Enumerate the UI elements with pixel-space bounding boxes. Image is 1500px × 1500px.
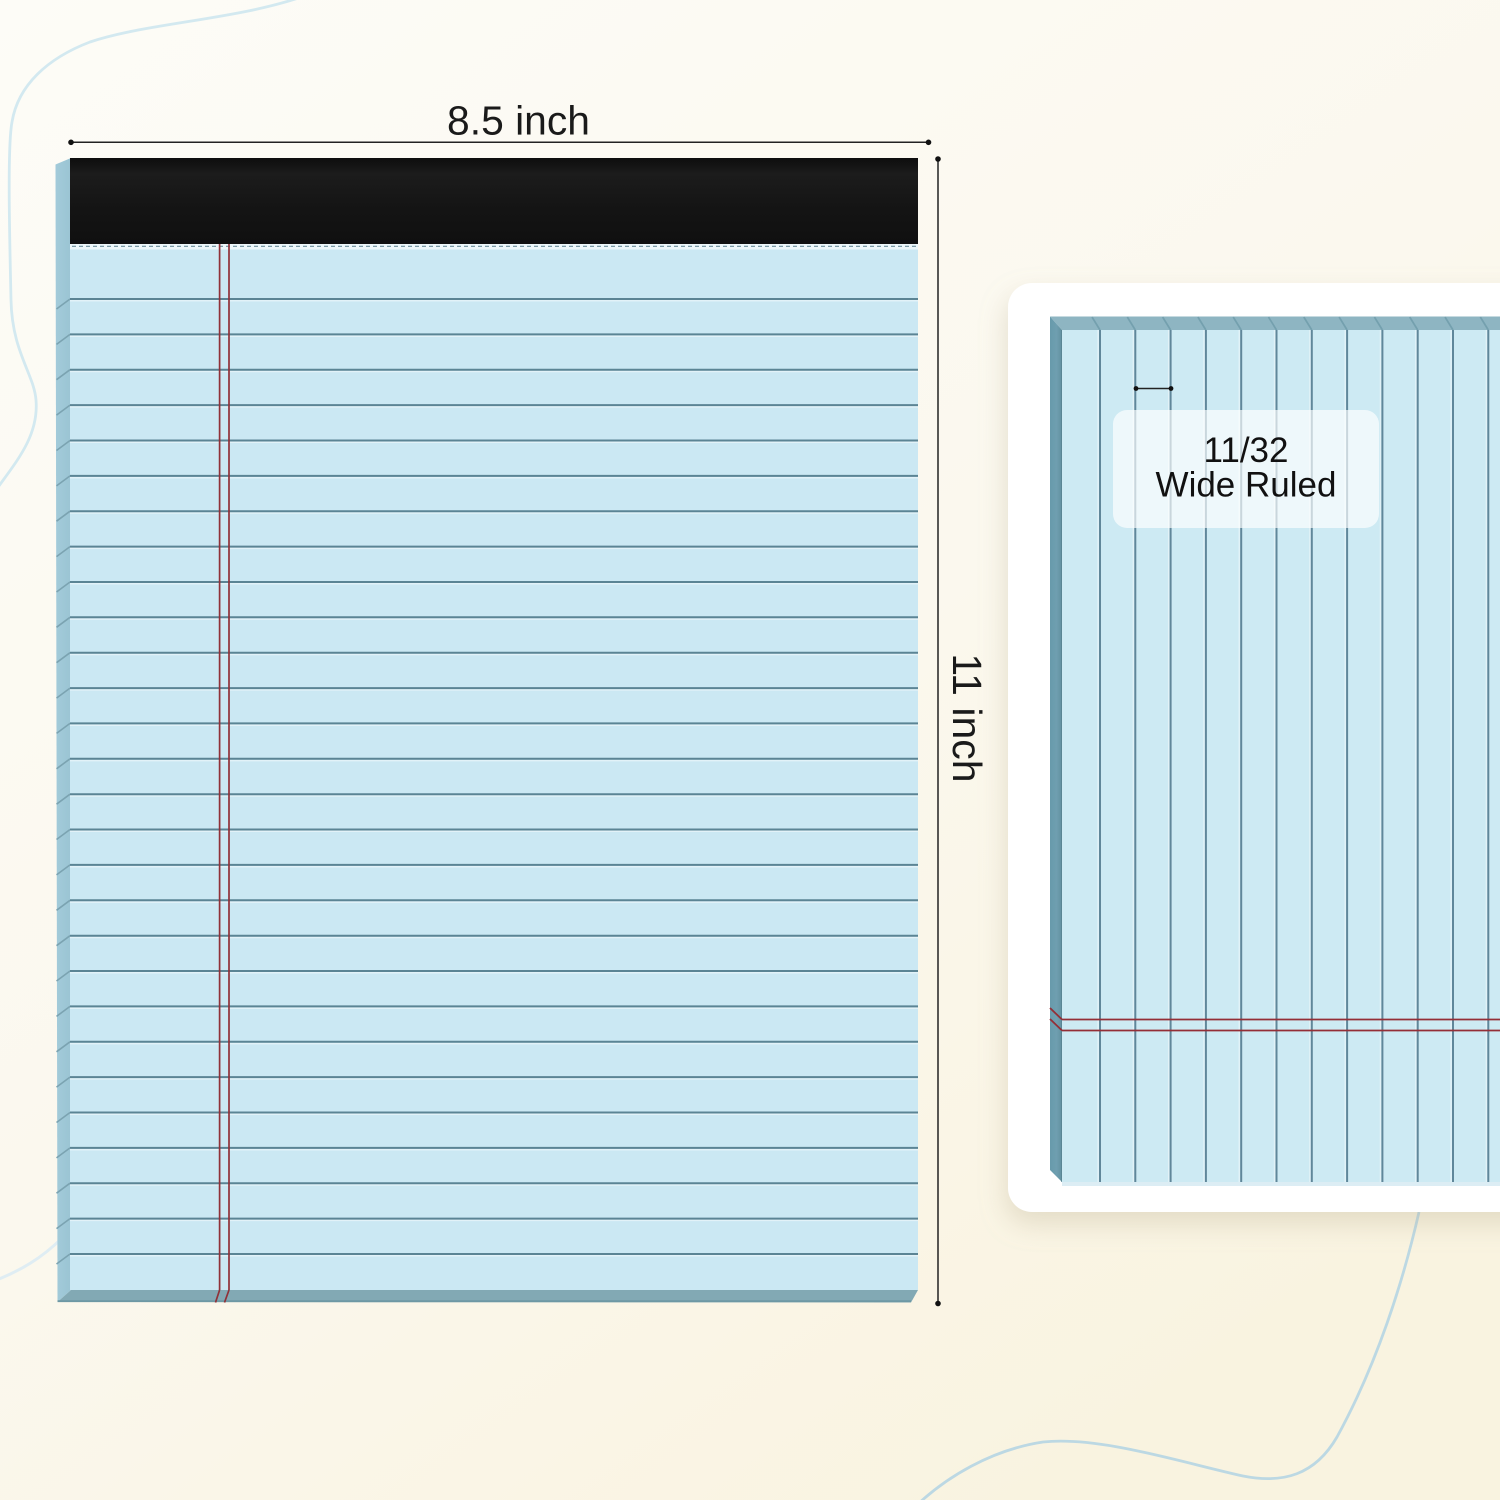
svg-text:11/32: 11/32 bbox=[1204, 431, 1289, 470]
svg-text:Wide Ruled: Wide Ruled bbox=[1156, 466, 1337, 505]
svg-text:11 inch: 11 inch bbox=[944, 653, 990, 782]
svg-text:8.5 inch: 8.5 inch bbox=[447, 98, 590, 144]
